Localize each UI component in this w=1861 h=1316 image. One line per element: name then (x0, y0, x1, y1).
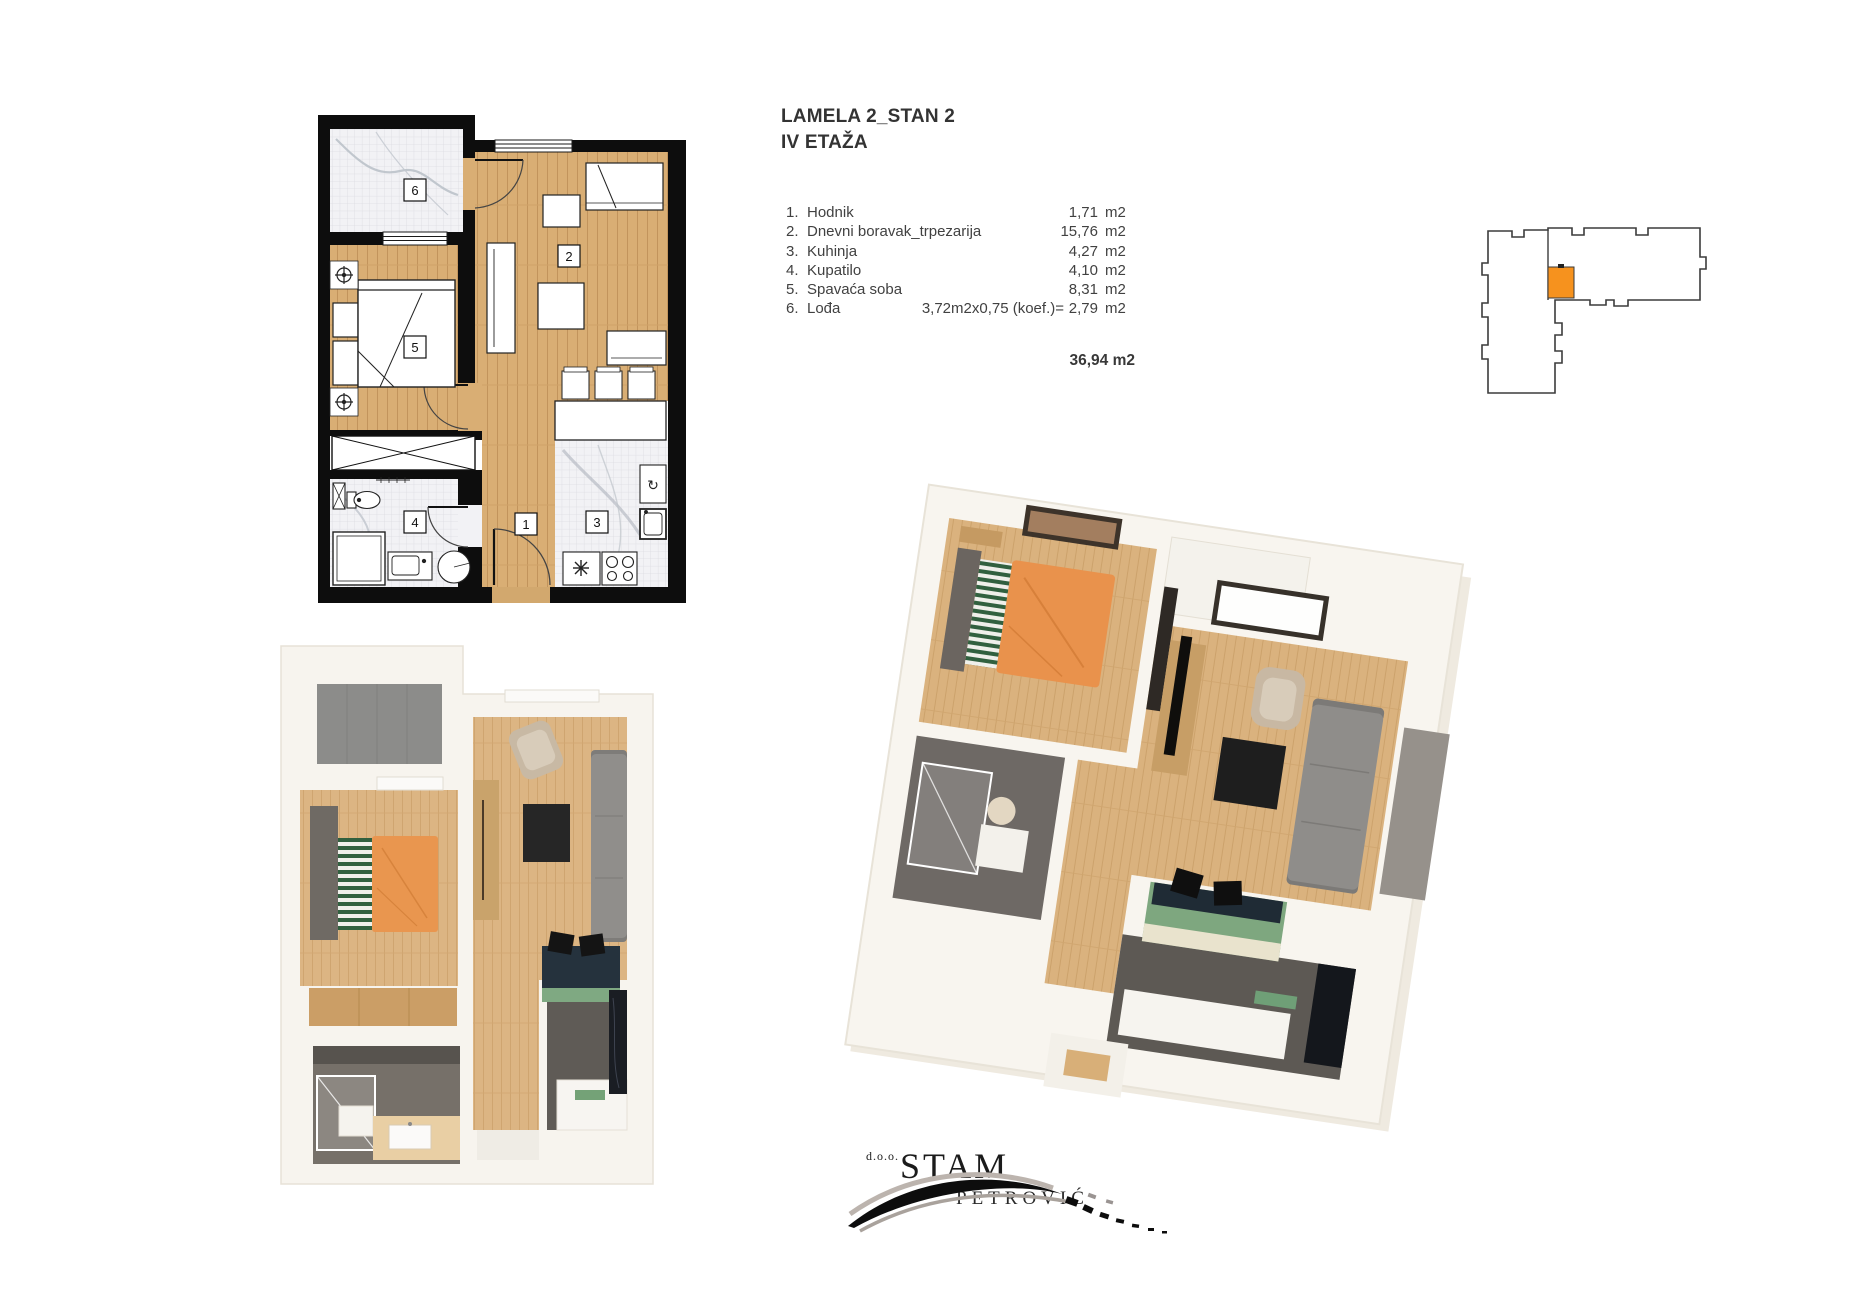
room-unit: m2 (1105, 222, 1126, 241)
building-outline (1482, 228, 1706, 393)
room-name: Hodnik (807, 203, 854, 222)
room-unit: m2 (1105, 242, 1126, 261)
room-num: 6. (786, 299, 799, 318)
label-bathroom: 4 (411, 515, 418, 530)
logo-prefix: d.o.o. (866, 1149, 899, 1163)
wardrobe-2d (332, 436, 475, 470)
fridge-icon: ↻ (647, 477, 659, 493)
room-row-5: 5. Spavaća soba 8,31 m2 (786, 280, 1138, 299)
room-row-4: 4. Kupatilo 4,10 m2 (786, 261, 1138, 280)
room-num: 4. (786, 261, 799, 280)
label-loggia: 6 (411, 183, 418, 198)
room-num: 3. (786, 242, 799, 261)
room-num: 2. (786, 222, 799, 241)
total-area: 36,94 m2 (1063, 352, 1135, 370)
room-name: Spavaća soba (807, 280, 902, 299)
highlighted-unit (1548, 267, 1574, 298)
label-bedroom: 5 (411, 340, 418, 355)
render-top-view (277, 638, 657, 1192)
room-unit: m2 (1105, 299, 1126, 318)
room-unit: m2 (1105, 203, 1126, 222)
room-name: Dnevni boravak_trpezarija (807, 222, 981, 241)
room-name: Lođa (807, 299, 840, 318)
room-row-3: 3. Kuhinja 4,27 m2 (786, 242, 1138, 261)
room-area: 15,76 (1038, 222, 1098, 241)
project-title: LAMELA 2_STAN 2 (781, 104, 955, 130)
room-unit: m2 (1105, 261, 1126, 280)
room-area: 8,31 (1038, 280, 1098, 299)
page-title: LAMELA 2_STAN 2 IV ETAŽA (781, 104, 955, 156)
room-name: Kupatilo (807, 261, 861, 280)
room-num: 5. (786, 280, 799, 299)
vent-star-icon (573, 560, 589, 576)
company-logo: d.o.o. STAM PETROVIĆ (848, 1136, 1178, 1251)
room-name: Kuhinja (807, 242, 857, 261)
room-num: 1. (786, 203, 799, 222)
room-row-6: 6. Lođa 3,72m2x0,75 (koef.)= 2,79 m2 (786, 299, 1138, 318)
room-area: 4,10 (1038, 261, 1098, 280)
unit-entrance-tick (1558, 264, 1564, 268)
room-unit: m2 (1105, 280, 1126, 299)
room-area: 1,71 (1038, 203, 1098, 222)
room-row-1: 1. Hodnik 1,71 m2 (786, 203, 1138, 222)
floor-plan-sheet: ↻ 6 2 5 4 (0, 0, 1861, 1316)
building-key-plan (1478, 183, 1723, 403)
room-list: 1. Hodnik 1,71 m2 2. Dnevni boravak_trpe… (786, 203, 1138, 319)
room-area: 2,79 (1038, 299, 1098, 318)
floor-title: IV ETAŽA (781, 130, 955, 156)
room-row-2: 2. Dnevni boravak_trpezarija 15,76 m2 (786, 222, 1138, 241)
label-living: 2 (565, 249, 572, 264)
label-hall: 1 (522, 517, 529, 532)
render-isometric-view (735, 428, 1555, 1188)
label-kitchen: 3 (593, 515, 600, 530)
plan-2d: ↻ 6 2 5 4 (318, 115, 686, 603)
room-area: 4,27 (1038, 242, 1098, 261)
